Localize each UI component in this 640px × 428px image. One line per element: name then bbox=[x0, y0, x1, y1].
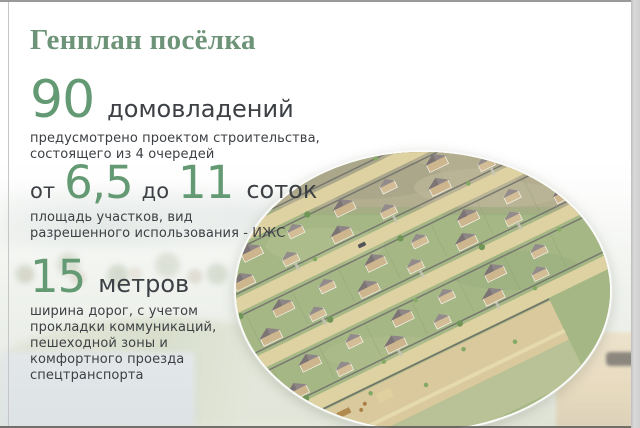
page-edge-right bbox=[631, 0, 640, 428]
faded-car bbox=[606, 352, 632, 366]
stat-number: 90 bbox=[30, 74, 94, 126]
stat-households: 90 домовладений предусмотрено проектом с… bbox=[30, 74, 320, 163]
stat-unit: домовладений bbox=[107, 97, 294, 121]
stat-number: 15 bbox=[30, 254, 85, 299]
stat-description: ширина дорог, с учетом прокладки коммуни… bbox=[30, 304, 216, 384]
stat-road-width: 15 метров ширина дорог, с учетом проклад… bbox=[30, 254, 216, 384]
stat-word-to: до bbox=[142, 181, 169, 202]
stat-headline: 15 метров bbox=[30, 254, 216, 299]
slide-photo: Генплан посёлка 90 домовладений предусмо… bbox=[0, 0, 640, 428]
stat-description: площадь участков, вид разрешенного испол… bbox=[30, 210, 317, 242]
stat-number-max: 11 bbox=[178, 160, 233, 205]
stat-headline: 90 домовладений bbox=[30, 74, 320, 126]
stat-number-min: 6,5 bbox=[64, 160, 133, 205]
photo-edge-top bbox=[0, 0, 640, 2]
stat-plot-size: от 6,5 до 11 соток площадь участков, вид… bbox=[30, 160, 317, 242]
stat-unit: метров bbox=[98, 272, 189, 296]
stat-headline: от 6,5 до 11 соток bbox=[30, 160, 317, 205]
stat-unit: соток bbox=[246, 178, 317, 202]
page-edge-left bbox=[8, 2, 9, 426]
stat-word-from: от bbox=[30, 181, 55, 202]
slide-title: Генплан посёлка bbox=[30, 24, 256, 57]
slide-page: Генплан посёлка 90 домовладений предусмо… bbox=[0, 0, 632, 428]
